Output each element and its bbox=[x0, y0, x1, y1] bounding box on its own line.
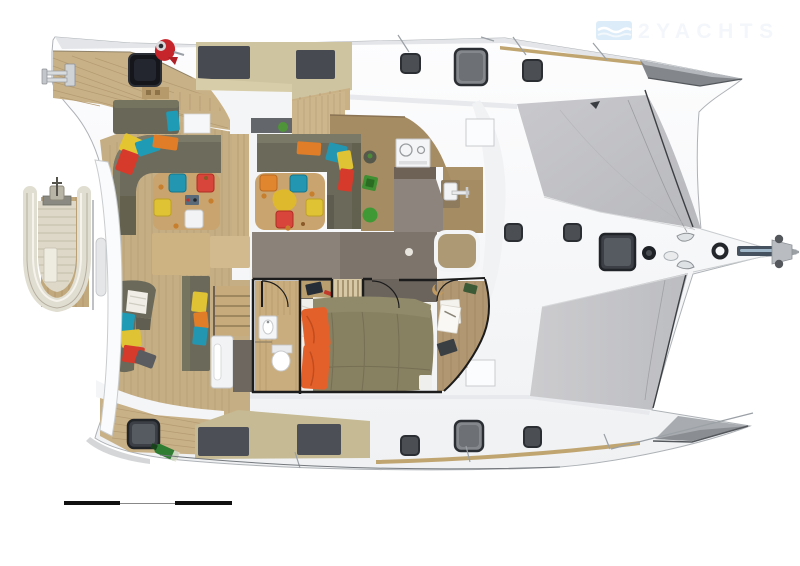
svg-text:2YACHTS: 2YACHTS bbox=[638, 20, 780, 43]
